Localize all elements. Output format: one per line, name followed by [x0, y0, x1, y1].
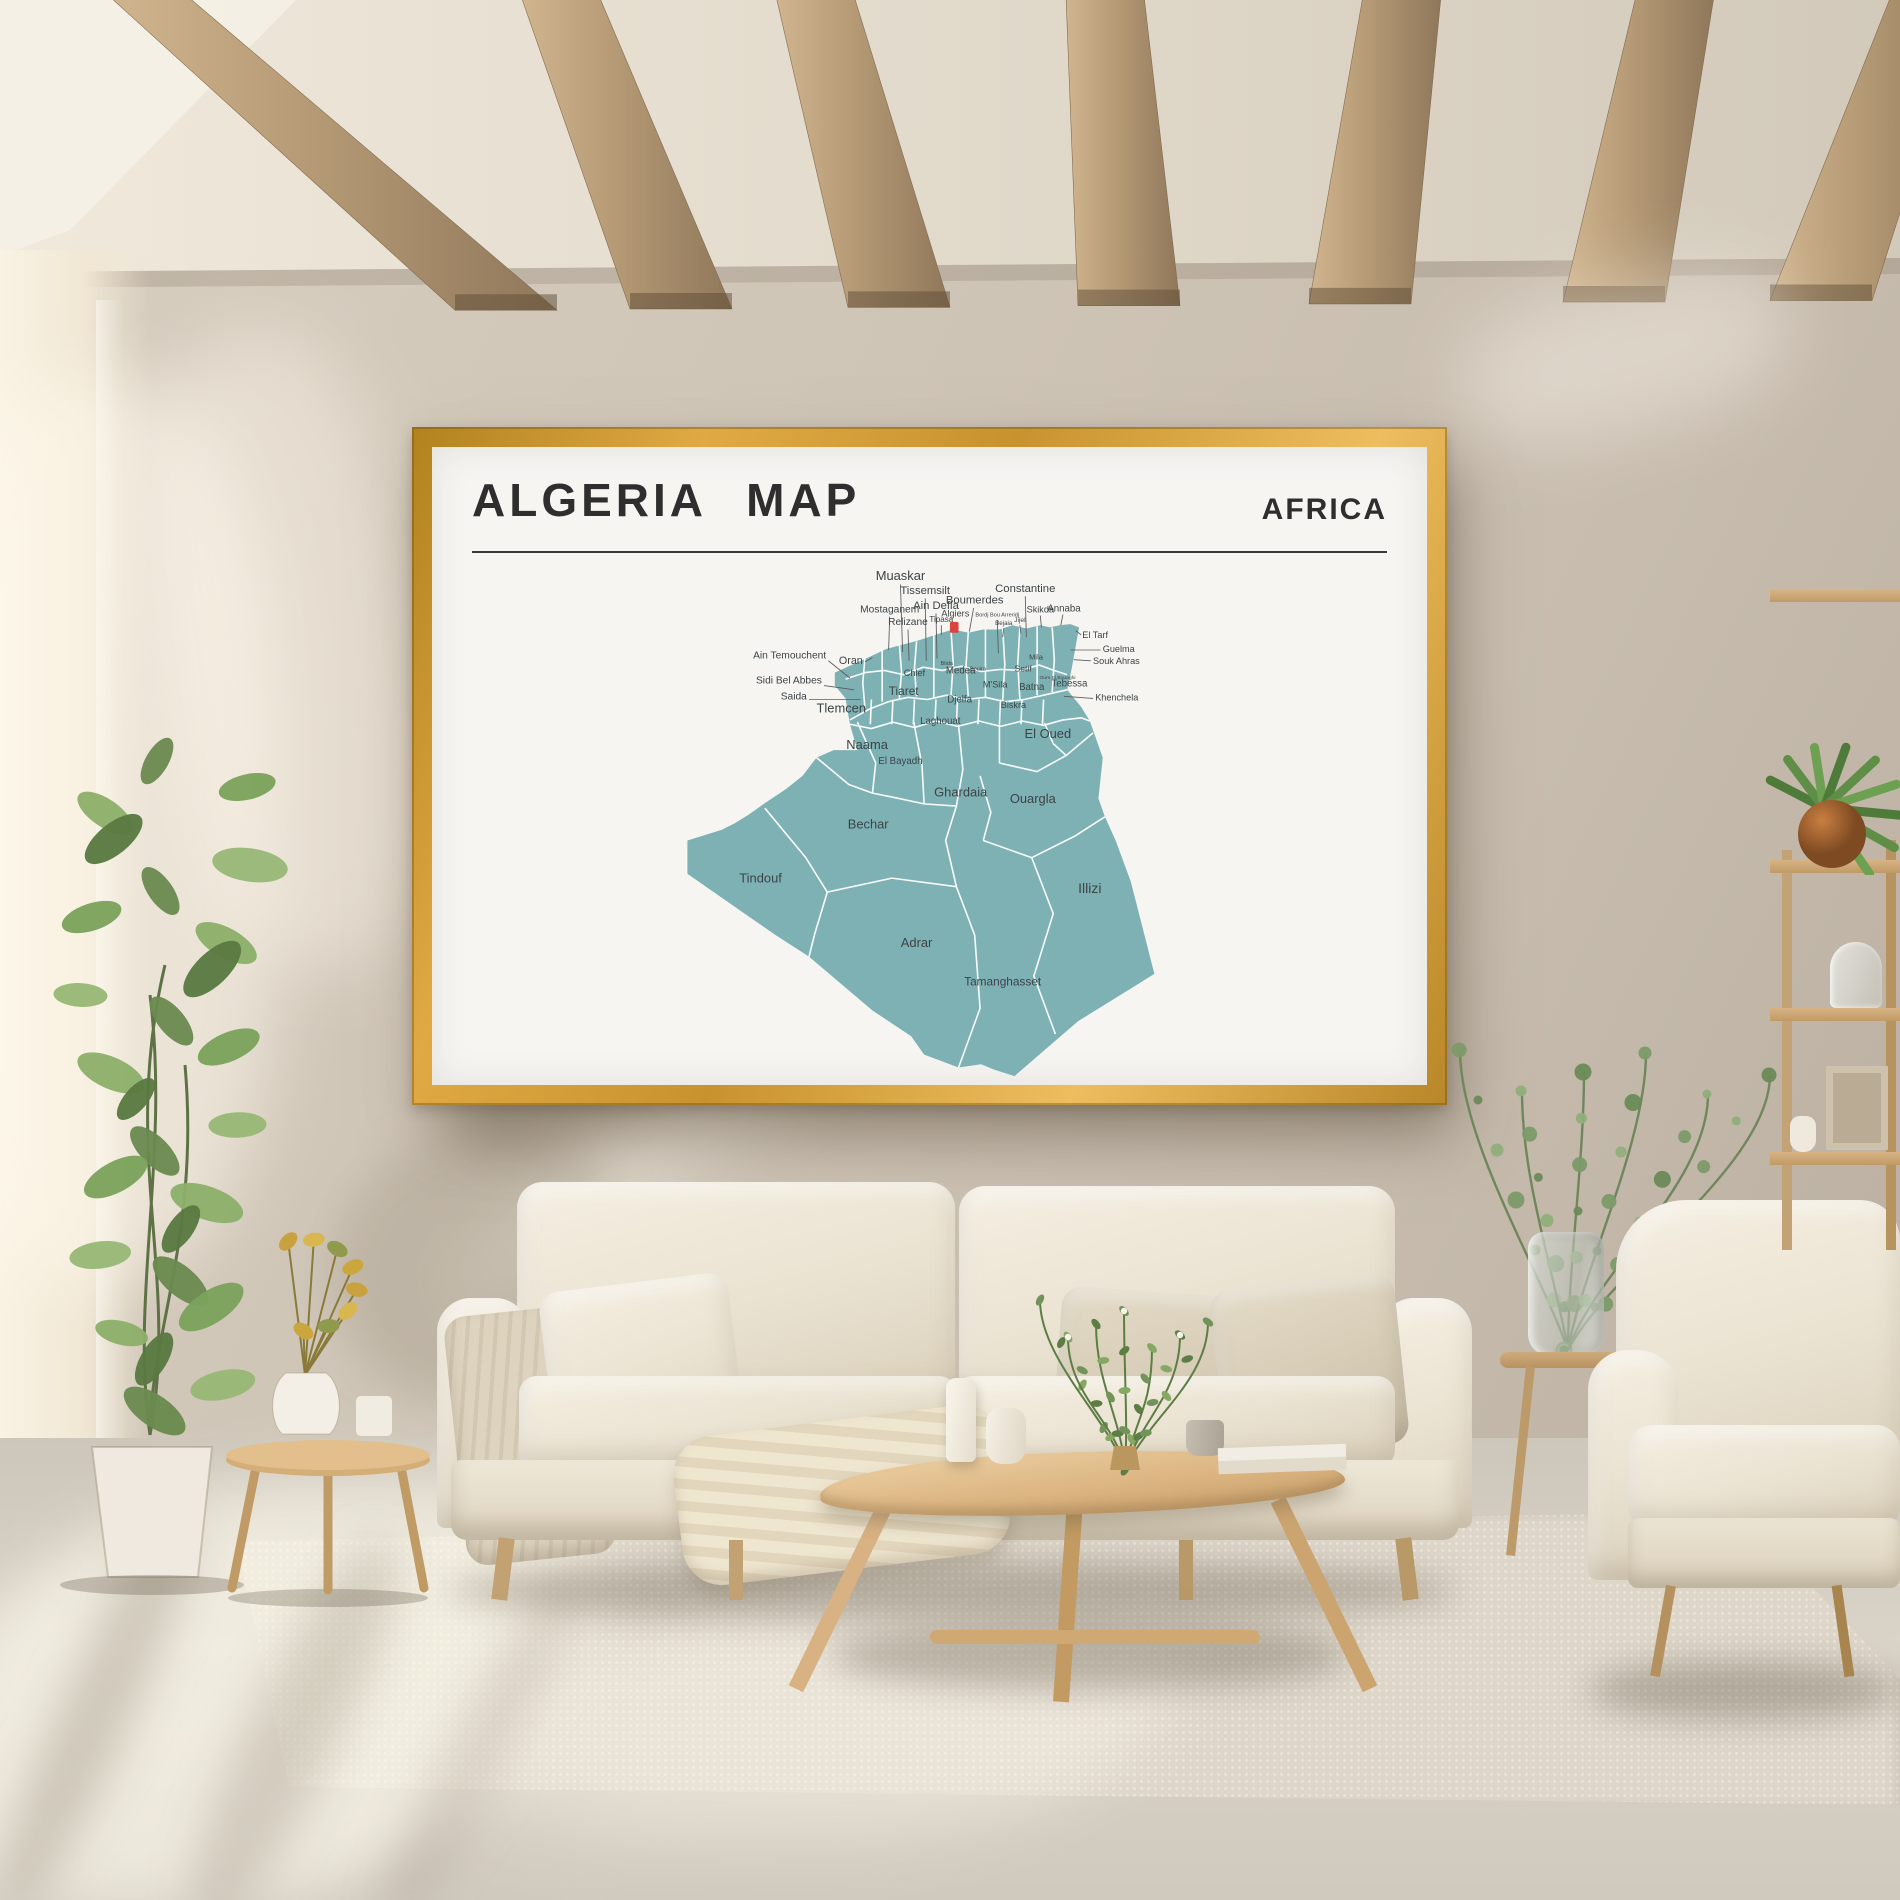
map-label: El Tarf — [1082, 630, 1108, 640]
map-label: Tebessa — [1051, 679, 1088, 690]
map-label: Annaba — [1047, 603, 1081, 614]
map-label: Tindouf — [739, 870, 782, 885]
shelf-unit — [1770, 560, 1900, 1260]
living-room-scene: ALGERIA MAP AFRICA MuaskarTissemsiltAin … — [0, 0, 1900, 1900]
map-label: Tissemsilt — [900, 585, 951, 597]
map-label: Guelma — [1103, 644, 1136, 654]
map-label: Relizane — [888, 617, 928, 628]
armchair-seat — [1628, 1425, 1900, 1530]
map-label: Setif — [1015, 664, 1033, 674]
map-label: Chlef — [904, 668, 926, 678]
map-label: Sidi Bel Abbes — [756, 675, 822, 686]
coffee-table-crossbar — [930, 1630, 1260, 1644]
map-label: El Bayadh — [878, 756, 922, 767]
map-label: Tlemcen — [817, 700, 867, 715]
picture-frame — [1826, 1066, 1888, 1150]
map-label: Illizi — [1078, 880, 1101, 896]
map-label: Bejaia — [995, 620, 1013, 627]
algeria-outline — [687, 624, 1154, 1076]
map-label: Ghardaia — [934, 784, 988, 799]
shelf-board — [1770, 1152, 1900, 1165]
poster-title: ALGERIA MAP — [472, 473, 860, 527]
map-label: Biskra — [1001, 700, 1027, 710]
stool-with-flower-vase — [210, 1180, 450, 1610]
shelf-rail — [1782, 850, 1792, 1250]
map-label: Jijel — [1014, 617, 1026, 624]
map-label: Adrar — [901, 935, 933, 950]
armchair — [1588, 1200, 1900, 1740]
map-label: Muaskar — [876, 568, 926, 583]
map-label: Djelfa — [947, 695, 972, 706]
map-label: Bechar — [848, 817, 890, 832]
map-label: Naama — [846, 737, 888, 752]
poster-region-label: AFRICA — [1262, 493, 1387, 527]
map-label: Tamanghasset — [964, 975, 1042, 989]
map-label: Bouira — [970, 666, 987, 672]
candle-jar — [946, 1378, 976, 1462]
map-label: Ouargla — [1010, 791, 1057, 806]
sofa-leg — [729, 1540, 743, 1600]
algeria-map-poster: ALGERIA MAP AFRICA MuaskarTissemsiltAin … — [412, 427, 1447, 1105]
sofa-leg — [1179, 1540, 1193, 1600]
shelf-board — [1770, 1008, 1900, 1021]
map-label: Tiaret — [889, 684, 920, 698]
map-label: Mostaganem — [860, 604, 919, 615]
shelf-board — [1770, 590, 1900, 602]
map-label: Batna — [1019, 682, 1045, 693]
map-label: Oran — [839, 655, 863, 667]
map-label: Bordj Bou Arreridj — [975, 613, 1019, 619]
small-vase — [1790, 1116, 1816, 1152]
map-label: Algiers — [941, 609, 969, 619]
map-label: Saida — [781, 692, 807, 703]
poster-paper: ALGERIA MAP AFRICA MuaskarTissemsiltAin … — [432, 447, 1427, 1085]
poster-header: ALGERIA MAP AFRICA — [472, 473, 1387, 527]
algeria-map: MuaskarTissemsiltAin DeflaBoumerdesConst… — [472, 565, 1387, 1103]
capital-marker — [950, 622, 959, 633]
poster-divider-rule — [472, 551, 1387, 553]
armchair-leg — [1832, 1585, 1855, 1677]
map-label: Ain Temouchent — [753, 651, 826, 662]
palm-plant — [1728, 690, 1900, 875]
glass-dome-ornament — [1830, 942, 1882, 1008]
armchair-base — [1628, 1518, 1900, 1588]
map-label: El Oued — [1025, 726, 1072, 741]
map-label: Boumerdes — [946, 595, 1004, 607]
map-label: Mila — [1029, 653, 1044, 662]
map-label: M'Sila — [983, 680, 1008, 690]
map-label: Laghouat — [920, 716, 961, 727]
map-label: Khenchela — [1095, 693, 1139, 703]
map-label: Constantine — [995, 583, 1055, 595]
map-label: Souk Ahras — [1093, 656, 1140, 666]
map-label: Blida — [941, 661, 954, 667]
shelf-rail — [1886, 840, 1896, 1250]
